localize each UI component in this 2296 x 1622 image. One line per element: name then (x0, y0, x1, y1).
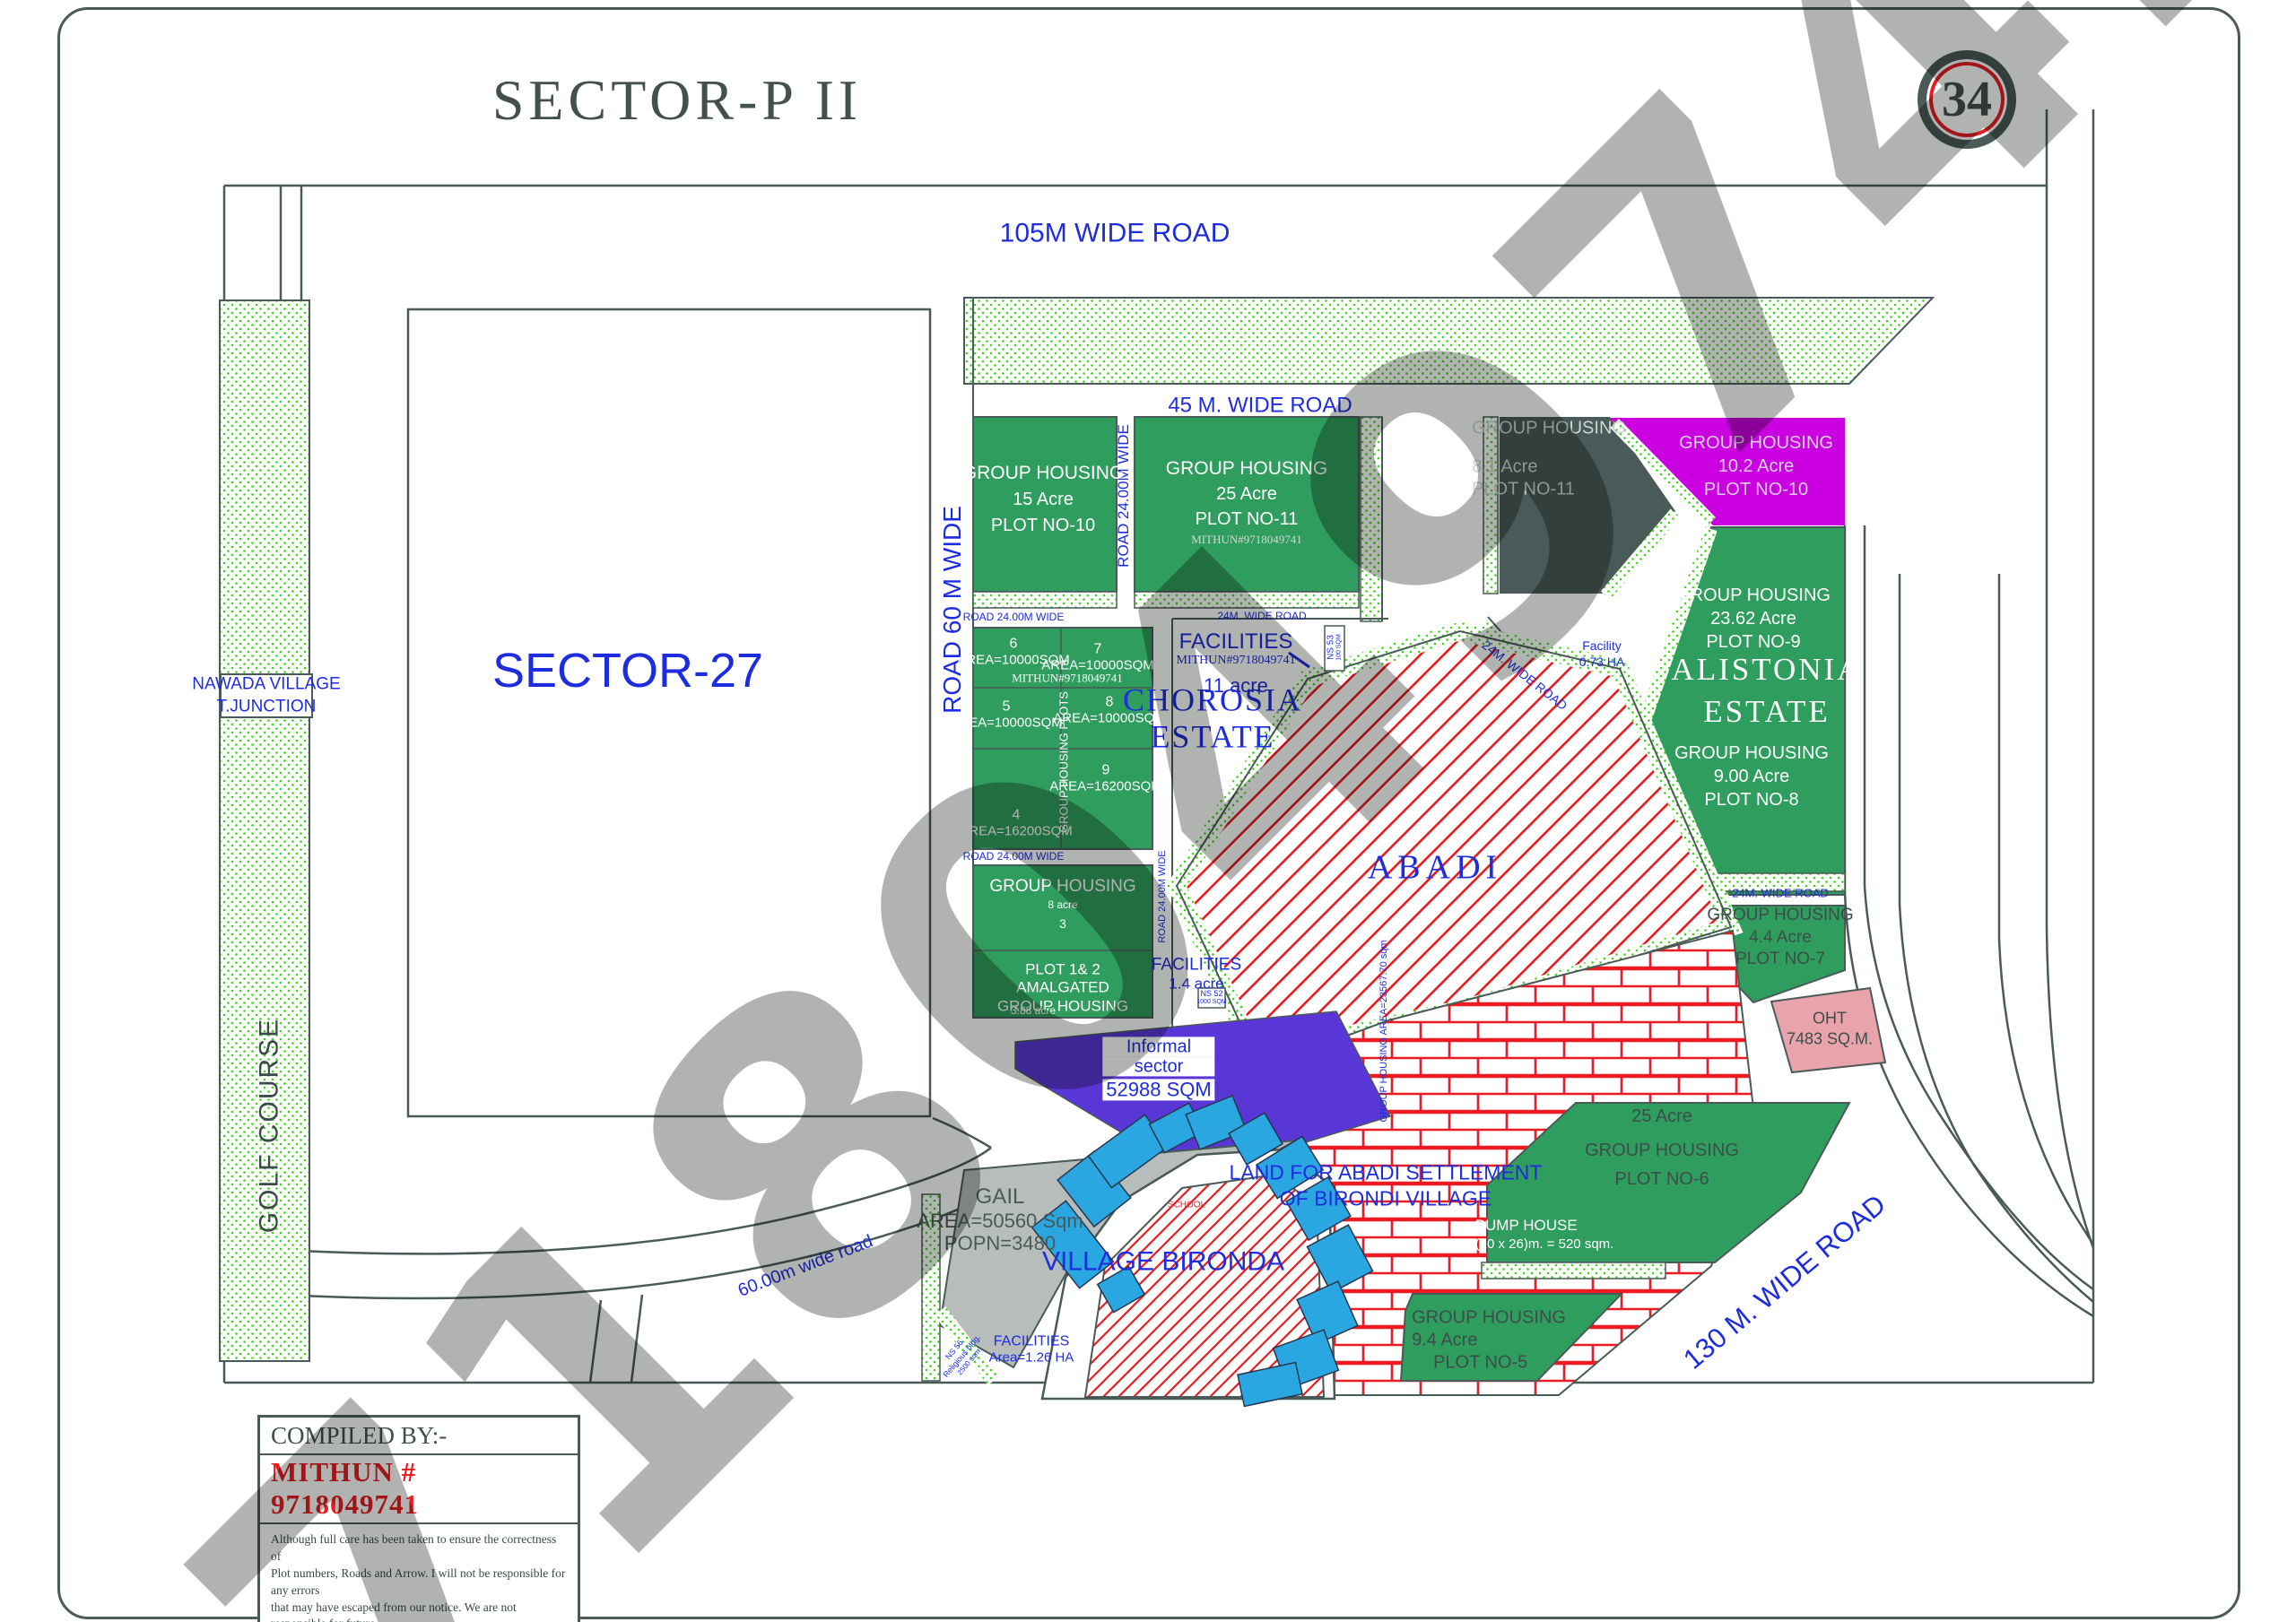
strip-plot-label: GROUP HOUSING AREA=23567.70 sqm (1378, 940, 1390, 1122)
page-title: SECTOR-P II (492, 67, 862, 134)
sheet-number: 34 (1942, 71, 1992, 128)
compiled-by-name: MITHUN # 9718049741 (260, 1455, 578, 1524)
facilities-126-label: FACILITIESArea=1.26 HA (989, 1332, 1074, 1366)
road-60m-curves (224, 1118, 1006, 1383)
plot-3-label: GROUP HOUSING8 acre3 (989, 876, 1135, 932)
sector-27-label: SECTOR-27 (492, 639, 763, 702)
sector-27-block (408, 309, 930, 1116)
village-bironda-label: VILLAGE BIRONDA (1042, 1245, 1284, 1279)
plot-11-strip-right (1361, 417, 1382, 621)
plot-10-strip (973, 592, 1117, 608)
facility-073-label: Facility0.73 HA (1579, 638, 1625, 670)
plot-grid-9: 9AREA=16200SQM (1049, 761, 1162, 794)
compiled-by-box: COMPILED BY:- MITHUN # 9718049741 Althou… (257, 1415, 580, 1622)
road-24m-village-label: ROAD 24.00M WIDE (1156, 850, 1169, 942)
plot-9-label: GROUP HOUSING23.62 AcrePLOT NO-9 (1676, 584, 1831, 654)
ns53-label: NS 53100 SQM (1326, 634, 1344, 661)
nawada-village-label: NAWADA VILLAGET.JUNCTION (192, 673, 340, 717)
pump-house-label: PUMP HOUSE(20 x 26)m. = 520 sqm. (1475, 1216, 1614, 1253)
plot-8-label: GROUP HOUSING9.00 AcrePLOT NO-8 (1674, 742, 1829, 811)
golf-course-label: GOLF COURSE (252, 1018, 287, 1233)
road-105m-label: 105M WIDE ROAD (1000, 216, 1231, 251)
compiled-by-heading: COMPILED BY:- (260, 1418, 578, 1455)
plot-grid-5: 5AREA=10000SQM (950, 698, 1063, 731)
road-24m-label-a: ROAD 24.00M WIDE (963, 611, 1065, 625)
plot-11-strip (1135, 592, 1359, 608)
plot-11b-label: GROUP HOUSING8.1 AcrePLOT NO-11 (1472, 418, 1626, 501)
sector-map-page: SECTOR-P II 34 (0, 0, 2296, 1622)
plot-grid-4: 4AREA=16200SQM (960, 806, 1073, 839)
road-24m-label-b: 24M. WIDE ROAD (1217, 610, 1306, 624)
road-45m-label: 45 M. WIDE ROAD (1168, 391, 1352, 419)
plot-grid-7: 7AREA=10000SQM (1041, 640, 1154, 673)
alistonia-estate-label: ALISTONIAESTATE (1671, 648, 1862, 733)
chorosia-estate-label: CHOROSIAESTATE (1123, 682, 1302, 757)
land-abadi-label: LAND FOR ABADI SETTLEMENTOF BIRONDI VILL… (1230, 1159, 1543, 1211)
plot-6-strip (1482, 1262, 1665, 1279)
plot-10-label: GROUP HOUSING15 AcrePLOT NO-10 (962, 460, 1124, 539)
greenbelt-top (964, 298, 1933, 384)
plot-grid-signature: MITHUN#9718049741 (1012, 672, 1123, 687)
plot-6-label: 25 AcreGROUP HOUSINGPLOT NO-6 (1585, 1106, 1739, 1190)
ns52-label: NS 521000 SQM (1196, 990, 1226, 1006)
road-24m-label-c: ROAD 24.00M WIDE (963, 850, 1065, 864)
road-130m-curves (1845, 525, 2093, 1316)
road-24m-right-label: 24M. WIDE ROAD (1732, 887, 1829, 902)
compiled-by-disclaimer: Although full care has been taken to ens… (260, 1524, 578, 1622)
facilities-14-label: FACILITIES1.4 acre (1152, 955, 1241, 992)
plot-11-label: GROUP HOUSING25 AcrePLOT NO-11 MITHUN#97… (1166, 455, 1327, 549)
abadi-label: ABADI (1368, 846, 1502, 889)
plot-5-label: GROUP HOUSING9.4 AcrePLOT NO-5 (1412, 1307, 1566, 1375)
oht-label: OHT7483 SQ.M. (1787, 1009, 1873, 1051)
school-label: SCHOOL (1168, 1200, 1205, 1211)
informal-sector-label: Informal sector 52988 SQM (1102, 1037, 1214, 1100)
sheet-number-badge: 34 (1918, 50, 2016, 149)
plot-10b-label: GROUP HOUSING10.2 AcrePLOT NO-10 (1679, 431, 1833, 501)
plot-7-label: GROUP HOUSING4.4 AcrePLOT NO-7 (1707, 905, 1853, 971)
plot-1-2-area: 3.88 acre (1011, 1004, 1056, 1019)
